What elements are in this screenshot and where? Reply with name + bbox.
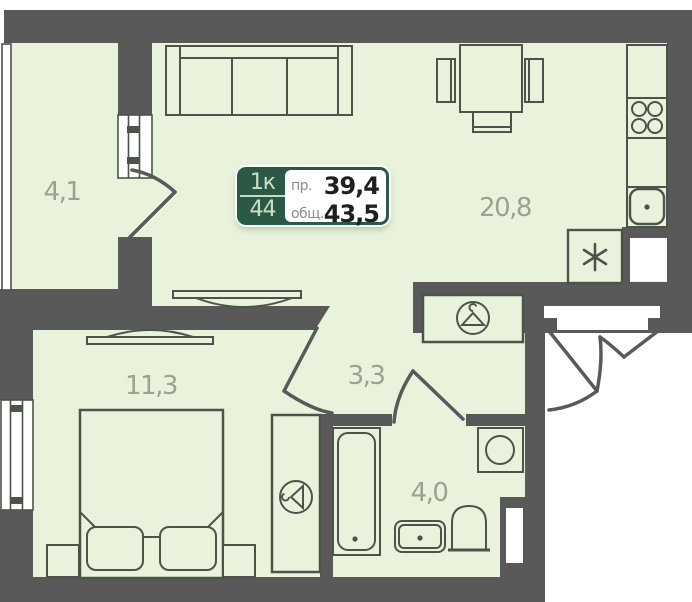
bed-pillow — [160, 527, 216, 570]
wall-kitchen-shaft-top — [622, 227, 667, 238]
room-area-loggia: 4,1 — [44, 177, 81, 207]
vent-shaft-bathroom — [506, 508, 523, 563]
project-area-row: пр. 39,4 — [291, 172, 379, 200]
unit-info-areas: пр. 39,4 общ. 43,5 — [285, 170, 386, 222]
loggia-room-window — [118, 115, 152, 178]
wall-bedroom-left-upper — [0, 330, 33, 400]
kitchen-sink — [627, 187, 667, 227]
wardrobe-bedroom — [272, 415, 320, 572]
stove — [627, 98, 667, 138]
wall-loggia-column-lower — [118, 237, 152, 290]
bed — [80, 410, 223, 578]
room-area-bathroom: 4,0 — [411, 478, 448, 508]
wall-bathroom-top-left — [330, 414, 392, 426]
project-area-label: пр. — [291, 178, 312, 194]
wall-bottom — [20, 577, 545, 602]
bathtub — [333, 428, 380, 555]
bedroom-window — [1, 400, 33, 510]
sink-drain-icon — [417, 535, 422, 540]
nightstand-left — [47, 545, 79, 577]
nightstand-right — [223, 545, 255, 577]
wardrobe-hallway — [423, 295, 523, 342]
unit-info-badge: 1к 44 пр. 39,4 общ. 43,5 — [237, 167, 389, 225]
chair-left — [437, 59, 455, 102]
wall-bedroom-bathroom — [320, 414, 333, 577]
wall-loggia-column-upper — [118, 43, 152, 115]
room-area-bedroom: 11,3 — [125, 371, 177, 401]
refrigerator — [568, 230, 622, 283]
total-area-value: 43,5 — [324, 200, 379, 228]
total-area-row: общ. 43,5 — [291, 200, 379, 228]
washing-machine — [478, 428, 523, 472]
room-area-hallway: 3,3 — [348, 361, 385, 391]
sink-drain-icon — [352, 536, 357, 541]
wall-loggia-bottom — [0, 289, 152, 330]
entry-door-swing — [549, 331, 658, 410]
floor-plan: 4,1 20,8 11,3 3,3 4,0 1к 44 пр. 39,4 общ… — [0, 0, 692, 602]
wall-top — [4, 10, 692, 43]
loggia-glazing-window — [2, 44, 11, 290]
floor-plan-drawing: 4,1 20,8 11,3 3,3 4,0 — [0, 0, 692, 602]
entry-jamb-right — [648, 318, 660, 330]
vent-shaft-kitchen — [630, 238, 667, 281]
wall-hall-vestibule — [525, 330, 545, 580]
kitchen-counter — [627, 45, 667, 227]
unit-info-left: 1к 44 — [240, 170, 285, 222]
total-area-label: общ. — [291, 206, 324, 222]
chair-right — [525, 59, 543, 102]
chair-bottom — [473, 112, 511, 132]
unit-rooms-count: 1к — [240, 170, 285, 197]
room-area-kitchen-living: 20,8 — [479, 193, 531, 223]
toilet — [448, 506, 490, 550]
wall-living-bedroom — [152, 306, 330, 330]
unit-number: 44 — [240, 197, 285, 222]
project-area-value: 39,4 — [324, 172, 379, 200]
wall-kitchen-shaft-left — [622, 238, 630, 283]
entry-jamb-left — [544, 318, 557, 330]
entry-door-recess — [544, 306, 660, 330]
sink-drain-icon — [644, 204, 649, 209]
bed-pillow — [87, 527, 143, 570]
bathroom-sink — [395, 521, 445, 552]
sofa — [166, 46, 352, 115]
